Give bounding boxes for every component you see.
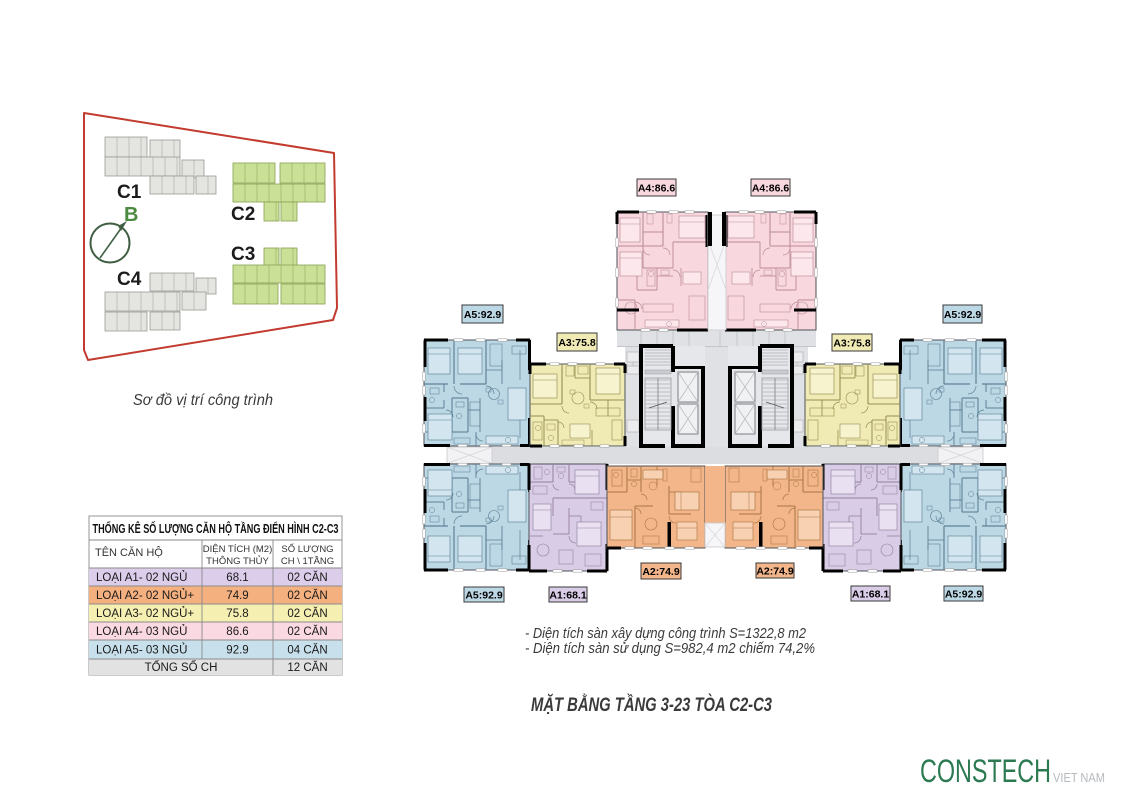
svg-text:MẶT BẰNG TẦNG 3-23 TÒA C2-C3: MẶT BẰNG TẦNG 3-23 TÒA C2-C3 — [531, 694, 772, 716]
svg-text:LOẠI A3- 02 NGỦ+: LOẠI A3- 02 NGỦ+ — [96, 607, 194, 620]
svg-text:75.8: 75.8 — [226, 608, 248, 620]
svg-text:CH \ 1TẦNG: CH \ 1TẦNG — [281, 556, 334, 567]
svg-text:C1: C1 — [117, 182, 142, 203]
svg-text:A5:92.9: A5:92.9 — [465, 589, 503, 601]
svg-text:A3:75.8: A3:75.8 — [833, 337, 871, 349]
svg-text:A4:86.6: A4:86.6 — [752, 182, 790, 194]
svg-text:02 CĂN: 02 CĂN — [287, 607, 327, 620]
svg-text:68.1: 68.1 — [226, 572, 248, 584]
svg-text:A2:74.9: A2:74.9 — [756, 565, 794, 577]
svg-text:A1:68.1: A1:68.1 — [549, 589, 587, 601]
svg-text:LOẠI A1- 02 NGỦ: LOẠI A1- 02 NGỦ — [96, 571, 187, 584]
svg-text:B: B — [124, 204, 138, 226]
svg-text:A5:92.9: A5:92.9 — [945, 588, 983, 600]
svg-text:- Diện tích sàn xây dựng công: - Diện tích sàn xây dựng công trình S=13… — [525, 626, 806, 642]
svg-text:02 CĂN: 02 CĂN — [287, 589, 327, 602]
svg-text:THÔNG THỦY: THÔNG THỦY — [206, 555, 269, 567]
svg-text:A1:68.1: A1:68.1 — [852, 588, 890, 600]
svg-text:A2:74.9: A2:74.9 — [642, 566, 680, 578]
svg-text:LOẠI A5- 03 NGỦ: LOẠI A5- 03 NGỦ — [96, 644, 187, 657]
svg-text:TÊN CĂN HỘ: TÊN CĂN HỘ — [95, 546, 163, 559]
svg-text:- Diện tích sàn sử dụng S=982,: - Diện tích sàn sử dụng S=982,4 m2 chiếm… — [525, 641, 815, 657]
svg-text:A5:92.9: A5:92.9 — [464, 309, 502, 321]
svg-text:C4: C4 — [117, 269, 142, 290]
svg-text:THỐNG KÊ SỐ LƯỢNG CĂN HỘ TẦNG: THỐNG KÊ SỐ LƯỢNG CĂN HỘ TẦNG ĐIỂN HÌNH … — [93, 521, 339, 536]
svg-text:DIỆN TÍCH (M2): DIỆN TÍCH (M2) — [203, 544, 273, 555]
svg-text:92.9: 92.9 — [226, 645, 248, 657]
svg-text:C3: C3 — [231, 244, 255, 265]
svg-text:CONSTECH: CONSTECH — [920, 753, 1051, 789]
svg-text:74.9: 74.9 — [226, 590, 248, 602]
svg-text:LOẠI A2- 02 NGỦ+: LOẠI A2- 02 NGỦ+ — [96, 589, 194, 602]
svg-text:A5:92.9: A5:92.9 — [944, 309, 982, 321]
svg-text:02 CĂN: 02 CĂN — [287, 625, 327, 638]
svg-text:A4:86.6: A4:86.6 — [638, 182, 676, 194]
svg-text:SỐ LƯỢNG: SỐ LƯỢNG — [281, 543, 333, 555]
svg-text:A3:75.8: A3:75.8 — [558, 337, 596, 349]
svg-text:12 CĂN: 12 CĂN — [287, 661, 327, 674]
svg-text:TỔNG SỐ CH: TỔNG SỐ CH — [145, 660, 218, 674]
svg-text:02 CĂN: 02 CĂN — [287, 571, 327, 584]
svg-text:VIET NAM: VIET NAM — [1053, 771, 1105, 785]
svg-text:C2: C2 — [231, 204, 255, 225]
svg-text:86.6: 86.6 — [226, 626, 248, 638]
svg-text:04 CĂN: 04 CĂN — [287, 644, 327, 657]
svg-text:LOẠI A4- 03 NGỦ: LOẠI A4- 03 NGỦ — [96, 625, 187, 638]
svg-text:Sơ đồ vị trí công trình: Sơ đồ vị trí công trình — [133, 392, 273, 409]
